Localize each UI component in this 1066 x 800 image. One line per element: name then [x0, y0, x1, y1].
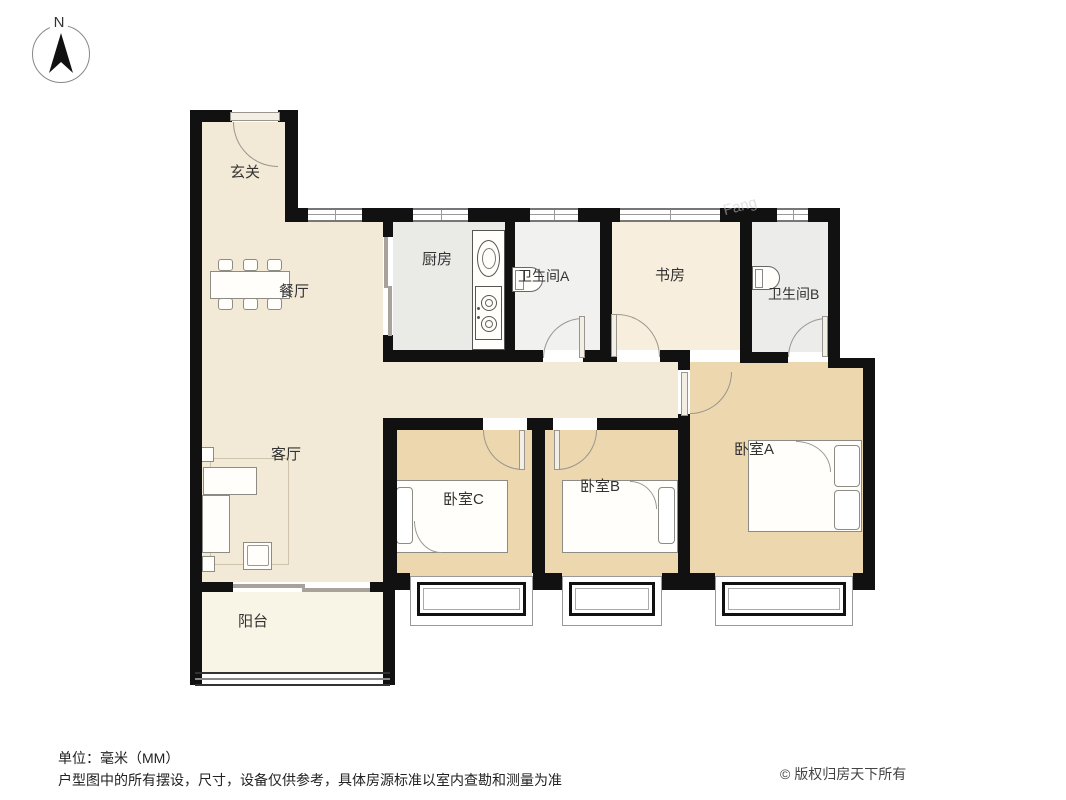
wall-bedrooms-top	[597, 418, 690, 430]
bathroom-b-sink-inner	[755, 269, 763, 288]
bay-window-frame	[722, 582, 846, 616]
bed-c-pillow	[396, 487, 413, 544]
north-arrow-icon	[41, 31, 81, 77]
bay-window-bedroom-b	[562, 576, 662, 626]
balcony-floor	[202, 592, 383, 674]
study-door-leaf	[611, 314, 617, 357]
wall-bottom	[533, 573, 562, 590]
bay-window-frame	[569, 582, 655, 616]
kitchen-sliding-door	[384, 237, 388, 288]
window	[530, 208, 578, 222]
room-label-bedroom-a: 卧室A	[734, 438, 774, 459]
balcony-railing	[195, 672, 390, 686]
room-label-balcony: 阳台	[238, 610, 268, 631]
room-label-bathroom-b: 卫生间B	[768, 284, 819, 304]
room-label-bathroom-a: 卫生间A	[518, 266, 569, 286]
wall-bedroom-a-right	[863, 358, 875, 590]
bedroom-c-door-leaf	[519, 430, 525, 470]
corridor-floor	[383, 362, 678, 418]
balcony-sliding-door	[302, 588, 370, 592]
wall-left	[190, 110, 202, 685]
sofa	[202, 495, 230, 553]
wall-bathroom-b-bottom	[740, 352, 788, 363]
wall-entry-top-left	[190, 110, 232, 122]
room-label-study: 书房	[655, 264, 685, 285]
wall-balcony-right	[383, 582, 395, 685]
bay-window-bedroom-a	[715, 576, 853, 626]
stove-knob	[477, 307, 480, 310]
room-label-entry: 玄关	[230, 161, 260, 182]
room-label-bedroom-c: 卧室C	[443, 488, 484, 509]
bathroom-b-door-leaf	[822, 316, 828, 357]
wall-top	[285, 208, 308, 222]
dining-chair	[218, 259, 233, 271]
railing-line	[195, 672, 390, 674]
railing-line	[195, 678, 390, 680]
room-label-dining: 餐厅	[279, 280, 309, 301]
dining-table	[210, 271, 290, 299]
bed-a-pillow	[834, 445, 860, 487]
bay-window-frame	[417, 582, 526, 616]
bay-window-glass	[575, 588, 649, 610]
armchair-seat	[247, 545, 269, 566]
wall-entry-right	[285, 110, 298, 222]
floorplan-image: N	[0, 0, 1066, 800]
armchair	[243, 542, 272, 570]
window	[620, 208, 720, 222]
window	[413, 208, 468, 222]
wall-study-bathroom-b	[740, 222, 752, 363]
balcony-sliding-door	[233, 584, 305, 588]
wall-bedrooms-top	[383, 418, 483, 430]
stove-burner-inner	[485, 299, 493, 307]
wall-kitchen-bathroom-a	[505, 222, 515, 362]
wall-corridor-top	[383, 350, 543, 362]
wall-top	[578, 208, 620, 222]
dining-chair	[243, 259, 258, 271]
window	[308, 208, 362, 222]
wall-bathroom-b-right	[828, 208, 840, 358]
side-table	[201, 447, 214, 462]
stove-burner-inner	[485, 320, 493, 328]
wall-bottom	[853, 573, 875, 590]
bay-window-bedroom-c	[410, 576, 533, 626]
railing-line	[195, 684, 390, 686]
kitchen-sliding-door	[388, 286, 392, 336]
room-label-bedroom-b: 卧室B	[580, 475, 620, 496]
dining-chair	[243, 298, 258, 310]
room-label-kitchen: 厨房	[422, 248, 452, 269]
dining-chair	[267, 259, 282, 271]
copyright-note: © 版权归房天下所有	[780, 764, 906, 784]
bed-a-pillow	[834, 490, 860, 530]
bedroom-a-door-leaf	[681, 372, 688, 416]
wall-bedroom-b-a	[678, 430, 690, 573]
sofa-chaise	[203, 467, 257, 495]
bay-window-glass	[423, 588, 520, 610]
wall-bedroom-c-b	[532, 418, 545, 573]
wall-bottom	[662, 573, 715, 590]
wall-bedroom-a-entry-stub	[678, 362, 690, 370]
bay-window-glass	[728, 588, 840, 610]
wall-bedroom-c-left	[383, 430, 397, 573]
wall-top	[468, 208, 530, 222]
window	[777, 208, 808, 222]
wall-kitchen-left-stub	[383, 222, 393, 237]
room-label-living: 客厅	[271, 443, 301, 464]
entry-door-leaf	[230, 112, 280, 121]
dining-chair	[218, 298, 233, 310]
bed-b-pillow	[658, 487, 675, 544]
compass	[32, 25, 90, 83]
wall-balcony-top-left	[190, 582, 233, 592]
side-table	[202, 556, 215, 572]
wall-top	[362, 208, 413, 222]
bathroom-a-door-leaf	[579, 316, 585, 358]
disclaimer-note: 户型图中的所有摆设，尺寸，设备仅供参考，具体房源标准以室内查勘和测量为准	[58, 770, 562, 790]
wall-corridor-top	[660, 350, 690, 362]
kitchen-sink-basin	[482, 248, 496, 269]
unit-note: 单位：毫米（MM）	[58, 748, 179, 768]
compass-north-label: N	[50, 14, 68, 31]
stove-knob	[477, 316, 480, 319]
bedroom-b-door-leaf	[554, 430, 560, 470]
